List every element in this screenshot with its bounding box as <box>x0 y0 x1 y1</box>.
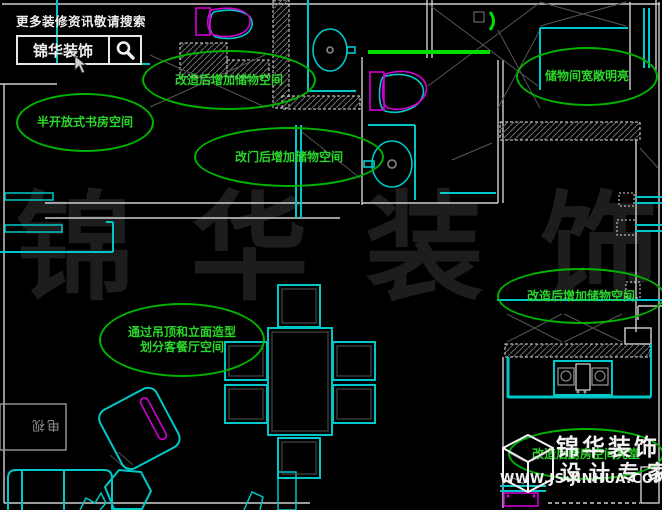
magnifier-icon <box>110 40 140 60</box>
stove-icon <box>554 361 612 395</box>
annotation-storage-right: 改造后增加储物空间 <box>497 268 662 324</box>
annotation-text: 改门后增加储物空间 <box>235 150 343 165</box>
toilet-right-icon <box>370 71 427 112</box>
annotation-closet-bright: 储物间宽敞明亮 <box>516 47 658 106</box>
annotation-text: 通过吊顶和立面造型 <box>128 325 236 340</box>
dining-chair <box>333 385 375 423</box>
sink-top-icon <box>313 29 355 71</box>
dining-chair <box>225 385 267 423</box>
banner-brand: 锦华装饰 <box>18 40 108 61</box>
tv-cabinet-label: 电视 <box>14 417 60 436</box>
annotation-storage-top: 改造后增加储物空间 <box>142 50 316 110</box>
toilet-top-icon <box>196 8 252 39</box>
annotation-text: 改造后增加储物空间 <box>527 289 635 304</box>
annotation-text: 改造后增加储物空间 <box>175 73 283 88</box>
window-lines <box>635 197 662 231</box>
annotation-living-zoning: 通过吊顶和立面造型 划分客餐厅空间 <box>99 303 265 377</box>
cube-logo-icon <box>502 434 554 498</box>
door-swing <box>452 143 492 160</box>
sofa <box>8 470 112 510</box>
armchair <box>96 384 183 472</box>
annotation-text: 半开放式书房空间 <box>37 115 133 130</box>
annotation-storage-door: 改门后增加储物空间 <box>194 127 384 187</box>
annotation-study: 半开放式书房空间 <box>16 93 154 152</box>
dining-table <box>268 328 332 435</box>
plant-icon <box>80 493 106 510</box>
highlight-green <box>368 12 494 52</box>
chair-fragment <box>244 492 263 510</box>
annotation-text: 储物间宽敞明亮 <box>545 69 629 84</box>
banner-tagline: 更多装修资讯敬请搜索 <box>16 11 142 30</box>
dining-table-set <box>225 285 375 478</box>
floor-plan-screenshot: 锦 华 装 饰 <box>0 0 662 510</box>
door-handle-icon <box>490 12 494 30</box>
brand-logo: 锦华装饰 设计专家 WWW.JS-JINHUA.COM <box>500 428 662 510</box>
annotation-text: 划分客餐厅空间 <box>140 340 224 355</box>
brand-website: WWW.JS-JINHUA.COM <box>500 472 662 487</box>
cursor-icon <box>74 56 88 78</box>
dining-chair <box>333 342 375 380</box>
dining-chair <box>278 285 320 327</box>
